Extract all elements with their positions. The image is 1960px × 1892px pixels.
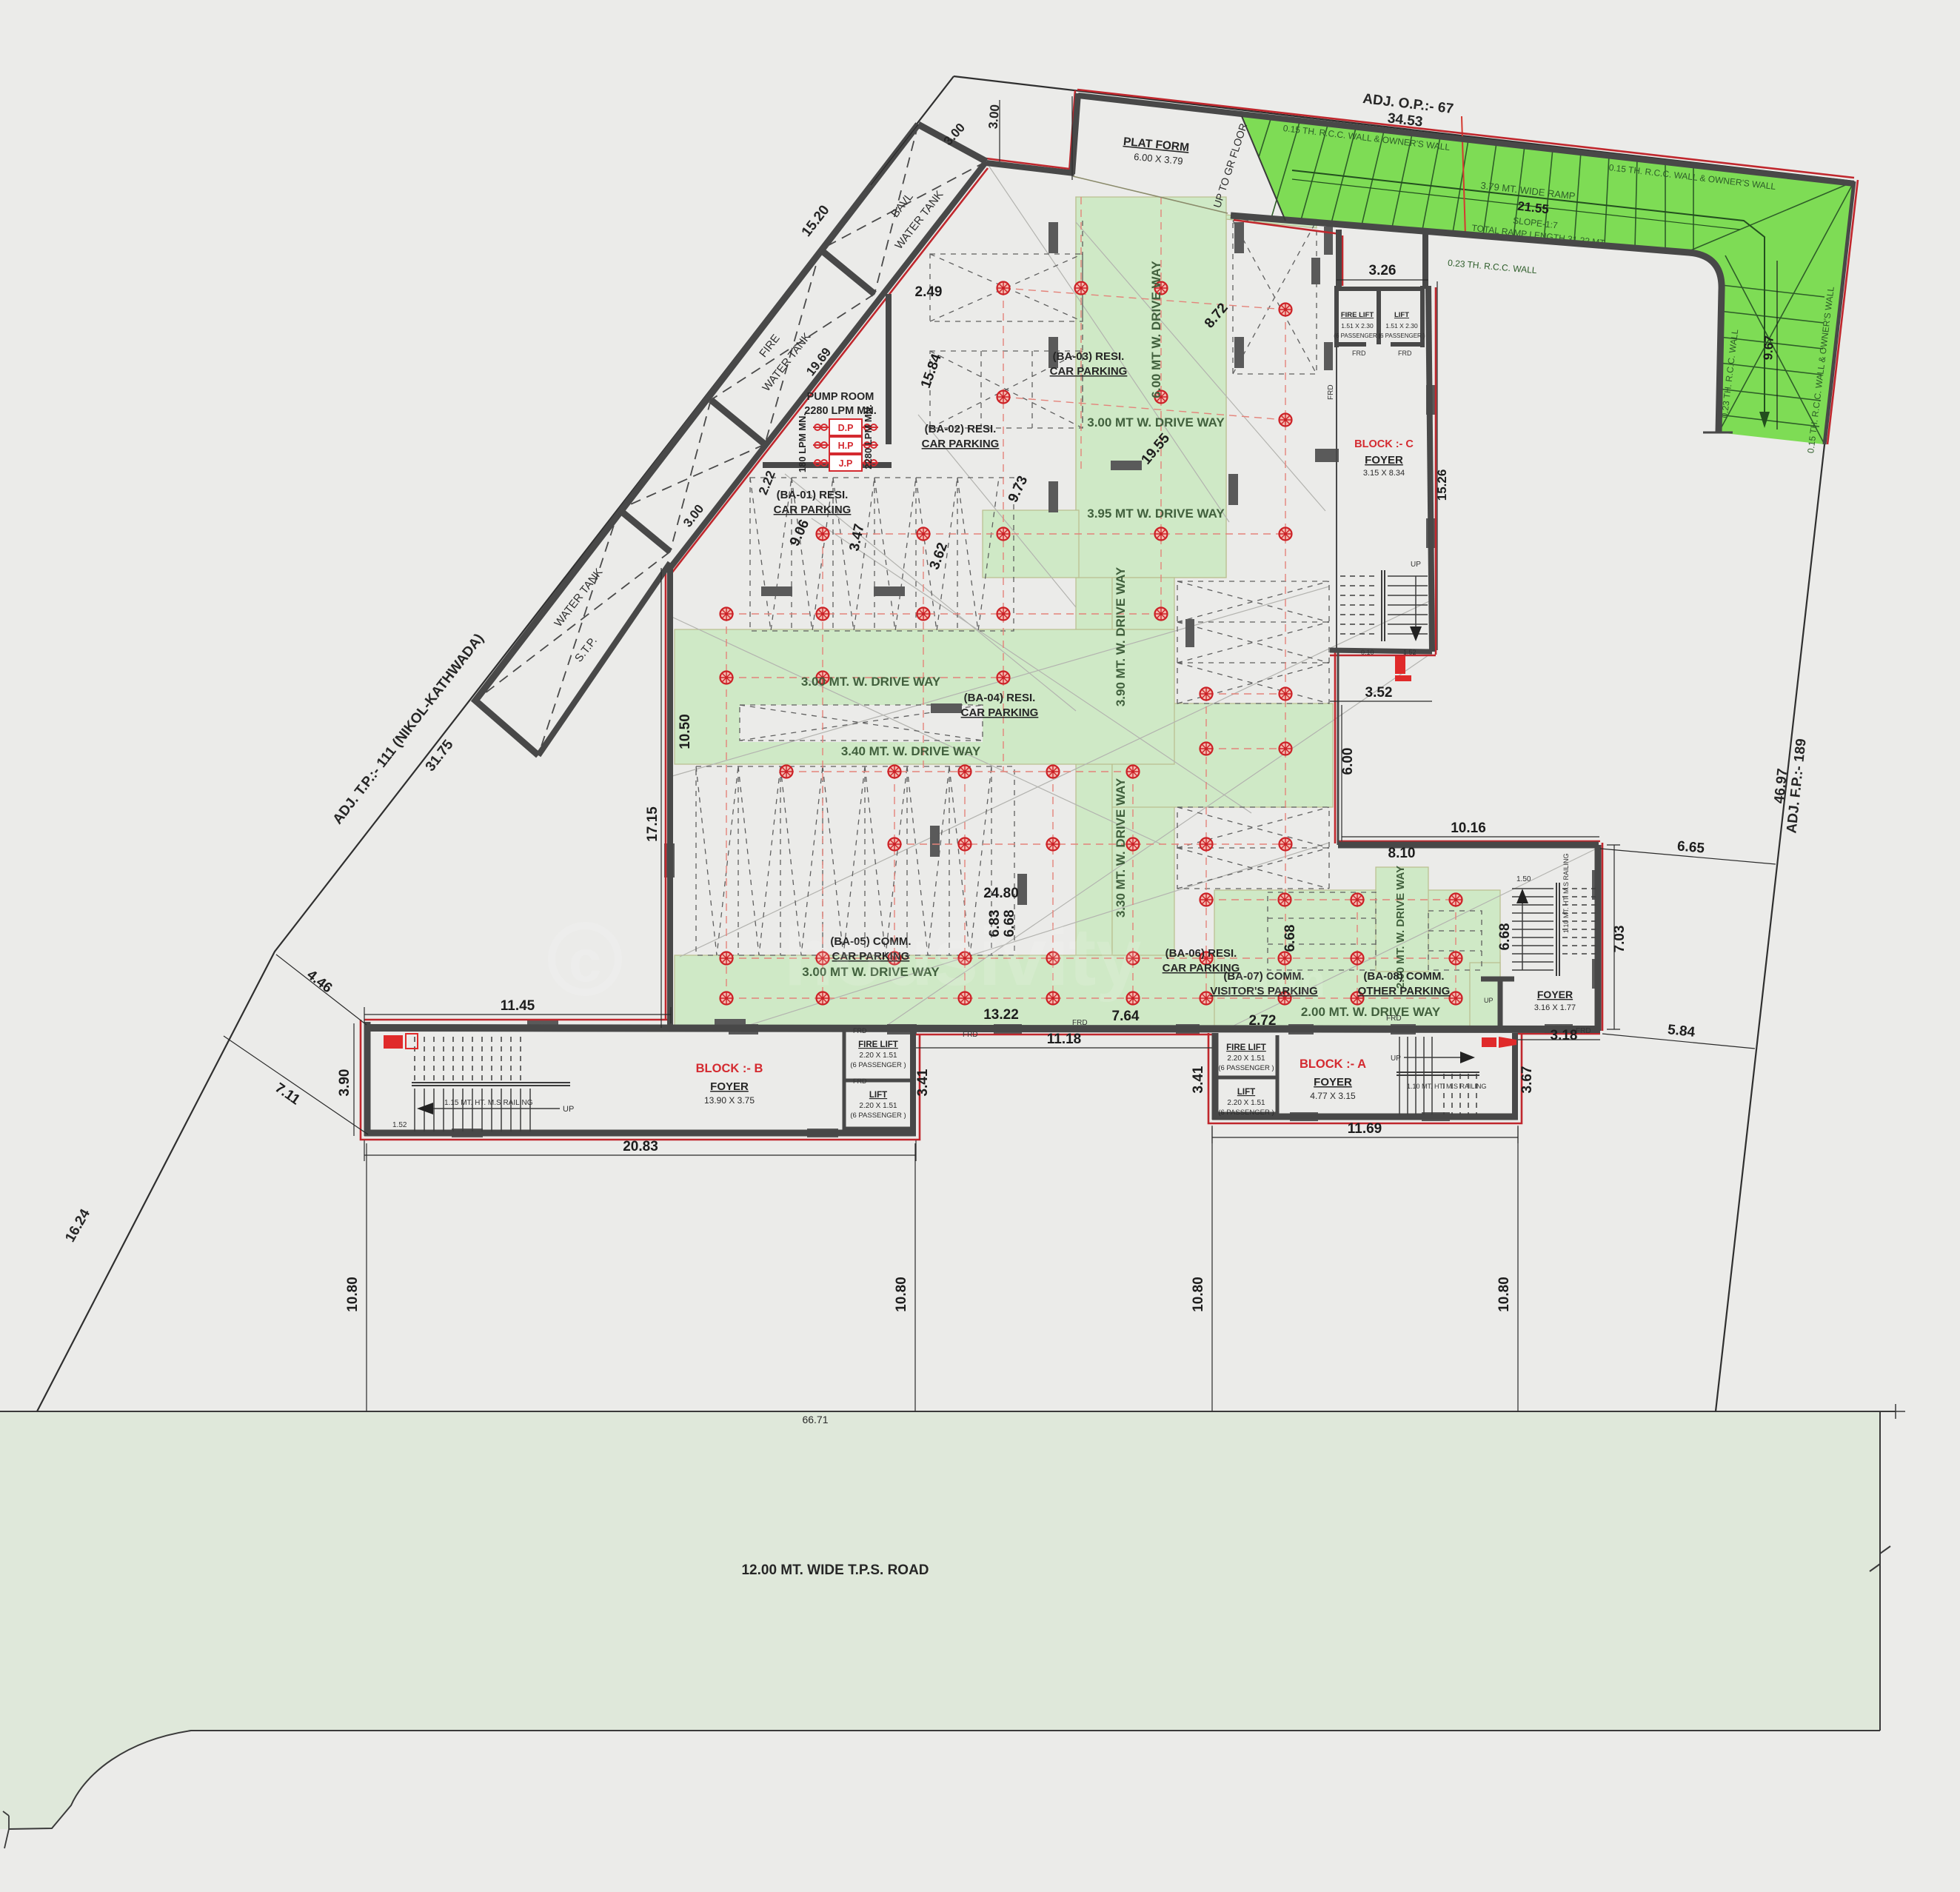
svg-text:1.52: 1.52	[392, 1121, 407, 1129]
svg-text:2.20 X 1.51: 2.20 X 1.51	[1227, 1054, 1265, 1063]
svg-text:3.41: 3.41	[1191, 1066, 1206, 1093]
svg-text:FRD: FRD	[1327, 384, 1335, 400]
svg-text:FRD: FRD	[1398, 350, 1412, 357]
svg-text:J.P: J.P	[839, 458, 853, 469]
svg-text:(6 PASSENGER ): (6 PASSENGER )	[850, 1061, 906, 1069]
svg-text:FRD: FRD	[853, 1077, 867, 1085]
svg-text:2.00 MT. W. DRIVE WAY: 2.00 MT. W. DRIVE WAY	[1301, 1005, 1441, 1019]
svg-text:1.51 X 2.30: 1.51 X 2.30	[1341, 322, 1374, 330]
svg-text:FRD: FRD	[963, 1031, 978, 1039]
svg-text:1.10 MT. HT. M.S RAILING: 1.10 MT. HT. M.S RAILING	[1562, 853, 1570, 933]
svg-text:6.68: 6.68	[1282, 925, 1298, 952]
svg-text:10.80: 10.80	[894, 1277, 909, 1312]
svg-text:UP: UP	[563, 1105, 574, 1114]
svg-text:13.22: 13.22	[983, 1007, 1019, 1023]
svg-text:2.72: 2.72	[1249, 1013, 1277, 1029]
svg-text:1.51 X 2.30: 1.51 X 2.30	[1385, 322, 1418, 330]
svg-text:(BA-03) RESI.: (BA-03) RESI.	[1053, 350, 1125, 363]
svg-text:1.15 MT. HT. M.S RAILING: 1.15 MT. HT. M.S RAILING	[444, 1099, 533, 1107]
svg-text:6.65: 6.65	[1676, 838, 1705, 856]
svg-text:1.50: 1.50	[1516, 875, 1531, 883]
svg-text:3.18: 3.18	[1551, 1028, 1578, 1043]
svg-text:(BA-04) RESI.: (BA-04) RESI.	[964, 692, 1036, 704]
svg-text:FIRE LIFT: FIRE LIFT	[858, 1040, 898, 1049]
svg-text:20.83: 20.83	[623, 1139, 658, 1154]
svg-text:10.50: 10.50	[678, 714, 693, 749]
svg-text:66.71: 66.71	[802, 1414, 828, 1425]
svg-text:(6 PASSENGER ): (6 PASSENGER )	[1334, 332, 1381, 339]
svg-text:4.77 X 3.15: 4.77 X 3.15	[1310, 1091, 1356, 1101]
svg-text:6.00 MT W. DRIVE WAY: 6.00 MT W. DRIVE WAY	[1149, 261, 1163, 398]
svg-text:CAR PARKING: CAR PARKING	[774, 504, 852, 516]
svg-text:2.20 X 1.51: 2.20 X 1.51	[859, 1102, 897, 1110]
svg-text:H.P: H.P	[838, 441, 854, 451]
svg-text:2.20 X 1.51: 2.20 X 1.51	[1227, 1099, 1265, 1107]
svg-text:3.90: 3.90	[337, 1069, 352, 1097]
svg-text:8.10: 8.10	[1388, 846, 1416, 861]
svg-text:FOYER: FOYER	[1314, 1076, 1352, 1089]
svg-text:UP: UP	[1411, 561, 1421, 569]
svg-text:FOYER: FOYER	[1365, 454, 1403, 467]
svg-text:FRD: FRD	[1576, 1027, 1591, 1035]
svg-text:BLOCK :- A: BLOCK :- A	[1300, 1057, 1366, 1071]
svg-text:3.90 MT. W. DRIVE WAY: 3.90 MT. W. DRIVE WAY	[1114, 566, 1128, 706]
svg-text:17.15: 17.15	[645, 806, 660, 842]
svg-text:FIRE LIFT: FIRE LIFT	[1341, 311, 1374, 319]
svg-text:(6 PASSENGER ): (6 PASSENGER )	[850, 1112, 906, 1120]
svg-text:UP: UP	[1484, 997, 1494, 1004]
svg-text:FRD: FRD	[853, 1027, 867, 1034]
svg-text:1.52: 1.52	[1403, 649, 1417, 656]
svg-text:0.10: 0.10	[1361, 649, 1374, 656]
svg-text:2280 LPM MN.: 2280 LPM MN.	[863, 404, 874, 469]
svg-text:3.52: 3.52	[1365, 685, 1393, 701]
svg-text:FRD: FRD	[1072, 1019, 1088, 1027]
svg-text:(BA-02) RESI.: (BA-02) RESI.	[925, 423, 997, 435]
svg-text:1.10 MT. HT. M.S RAILING: 1.10 MT. HT. M.S RAILING	[1407, 1083, 1487, 1090]
svg-text:BLOCK :- C: BLOCK :- C	[1354, 438, 1414, 450]
svg-text:3.00 MT. W. DRIVE WAY: 3.00 MT. W. DRIVE WAY	[801, 675, 941, 689]
svg-text:FRD: FRD	[1386, 1014, 1402, 1023]
svg-text:(BA-01) RESI.: (BA-01) RESI.	[777, 489, 849, 501]
svg-text:6.00: 6.00	[1340, 748, 1356, 775]
svg-text:10.80: 10.80	[1496, 1277, 1512, 1312]
svg-text:LIFT: LIFT	[869, 1091, 887, 1100]
svg-text:15.26: 15.26	[1435, 469, 1449, 501]
svg-text:CAR PARKING: CAR PARKING	[922, 438, 1000, 450]
svg-text:(6 PASSENGER ): (6 PASSENGER )	[1218, 1109, 1274, 1117]
svg-text:3.00 MT W. DRIVE WAY: 3.00 MT W. DRIVE WAY	[1087, 415, 1225, 429]
svg-text:3.41: 3.41	[915, 1069, 931, 1096]
svg-text:(6 PASSENGER ): (6 PASSENGER )	[1378, 332, 1425, 339]
svg-text:CAR PARKING: CAR PARKING	[961, 706, 1039, 719]
svg-text:6.68: 6.68	[1497, 923, 1513, 951]
svg-text:BLOCK :- B: BLOCK :- B	[696, 1062, 763, 1075]
svg-text:LIFT: LIFT	[1237, 1088, 1255, 1097]
svg-text:PUMP ROOM: PUMP ROOM	[807, 391, 874, 403]
svg-text:FOYER: FOYER	[1537, 989, 1573, 1000]
svg-text:(6 PASSENGER ): (6 PASSENGER )	[1218, 1064, 1274, 1072]
svg-text:9.67: 9.67	[1761, 335, 1776, 361]
svg-text:13.90 X 3.75: 13.90 X 3.75	[704, 1095, 755, 1106]
svg-text:D.P: D.P	[838, 423, 854, 433]
svg-text:FOYER: FOYER	[710, 1080, 749, 1093]
svg-text:(BA-08) COMM.: (BA-08) COMM.	[1363, 970, 1444, 983]
svg-text:housivity: housivity	[784, 912, 1142, 1003]
svg-text:3.40 MT. W. DRIVE WAY: 3.40 MT. W. DRIVE WAY	[841, 744, 981, 758]
svg-text:7.03: 7.03	[1612, 926, 1628, 953]
svg-text:CAR PARKING: CAR PARKING	[1050, 365, 1128, 378]
svg-text:7.64: 7.64	[1112, 1009, 1140, 1024]
svg-text:10.80: 10.80	[345, 1277, 361, 1312]
svg-text:2.49: 2.49	[915, 284, 943, 300]
svg-text:3.15 X 8.34: 3.15 X 8.34	[1363, 469, 1405, 478]
svg-text:.com: .com	[1222, 956, 1325, 1006]
svg-text:3.26: 3.26	[1369, 263, 1397, 278]
svg-text:11.45: 11.45	[501, 998, 535, 1014]
svg-text:12.00 MT. WIDE T.P.S. ROAD: 12.00 MT. WIDE T.P.S. ROAD	[741, 1562, 929, 1578]
svg-text:24.80: 24.80	[983, 886, 1019, 901]
svg-text:LIFT: LIFT	[1394, 311, 1409, 319]
svg-text:10.80: 10.80	[1191, 1277, 1206, 1312]
svg-text:11.69: 11.69	[1348, 1121, 1382, 1137]
svg-text:UP: UP	[1391, 1054, 1401, 1063]
svg-text:OTHER PARKING: OTHER PARKING	[1358, 985, 1451, 997]
svg-text:5.84: 5.84	[1667, 1022, 1696, 1040]
svg-text:FIRE LIFT: FIRE LIFT	[1226, 1043, 1266, 1052]
svg-text:2.20 X 1.51: 2.20 X 1.51	[859, 1052, 897, 1060]
svg-text:c: c	[569, 928, 602, 994]
svg-text:3.30 MT. W. DRIVE WAY: 3.30 MT. W. DRIVE WAY	[1114, 778, 1128, 917]
svg-text:3.67: 3.67	[1519, 1066, 1535, 1094]
svg-text:FRD: FRD	[1352, 350, 1366, 357]
svg-text:3.16 X 1.77: 3.16 X 1.77	[1534, 1003, 1576, 1012]
svg-text:3.95 MT W. DRIVE WAY: 3.95 MT W. DRIVE WAY	[1087, 507, 1225, 521]
svg-text:180 LPM MN.: 180 LPM MN.	[797, 413, 808, 472]
svg-text:11.18: 11.18	[1047, 1032, 1082, 1047]
svg-text:10.16: 10.16	[1451, 820, 1486, 836]
